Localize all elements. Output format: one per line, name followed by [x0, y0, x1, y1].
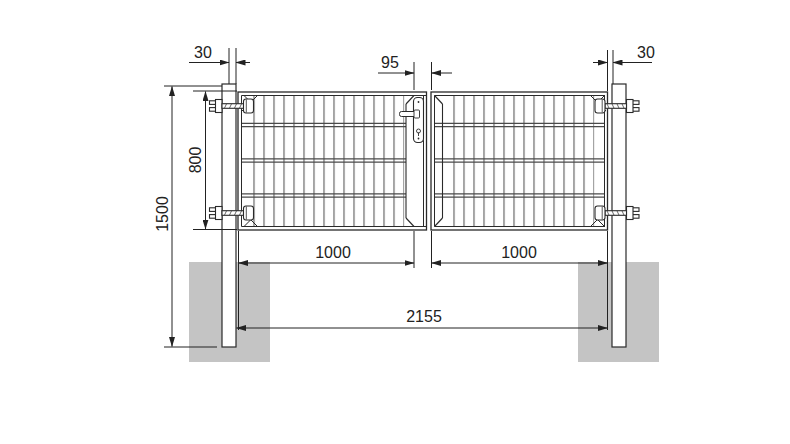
left-leaf-mesh — [253, 96, 404, 226]
label-post-height: 1500 — [154, 196, 171, 232]
right-leaf-mesh — [447, 96, 594, 226]
gate-technical-drawing: 30 95 30 800 1500 1000 1000 2155 — [0, 0, 790, 444]
label-left-post-offset: 30 — [194, 44, 212, 61]
label-right-leaf-width: 1000 — [501, 244, 537, 261]
label-leaf-height: 800 — [187, 147, 204, 174]
left-gate-leaf — [238, 92, 427, 230]
label-right-post-offset: 30 — [637, 44, 655, 61]
drawing-canvas: 30 95 30 800 1500 1000 1000 2155 — [0, 0, 790, 444]
right-gate-leaf — [431, 92, 608, 230]
label-left-leaf-width: 1000 — [315, 244, 351, 261]
keyhole-icon — [417, 129, 421, 133]
label-center-clearance: 95 — [381, 54, 399, 71]
label-overall-width: 2155 — [406, 308, 442, 325]
